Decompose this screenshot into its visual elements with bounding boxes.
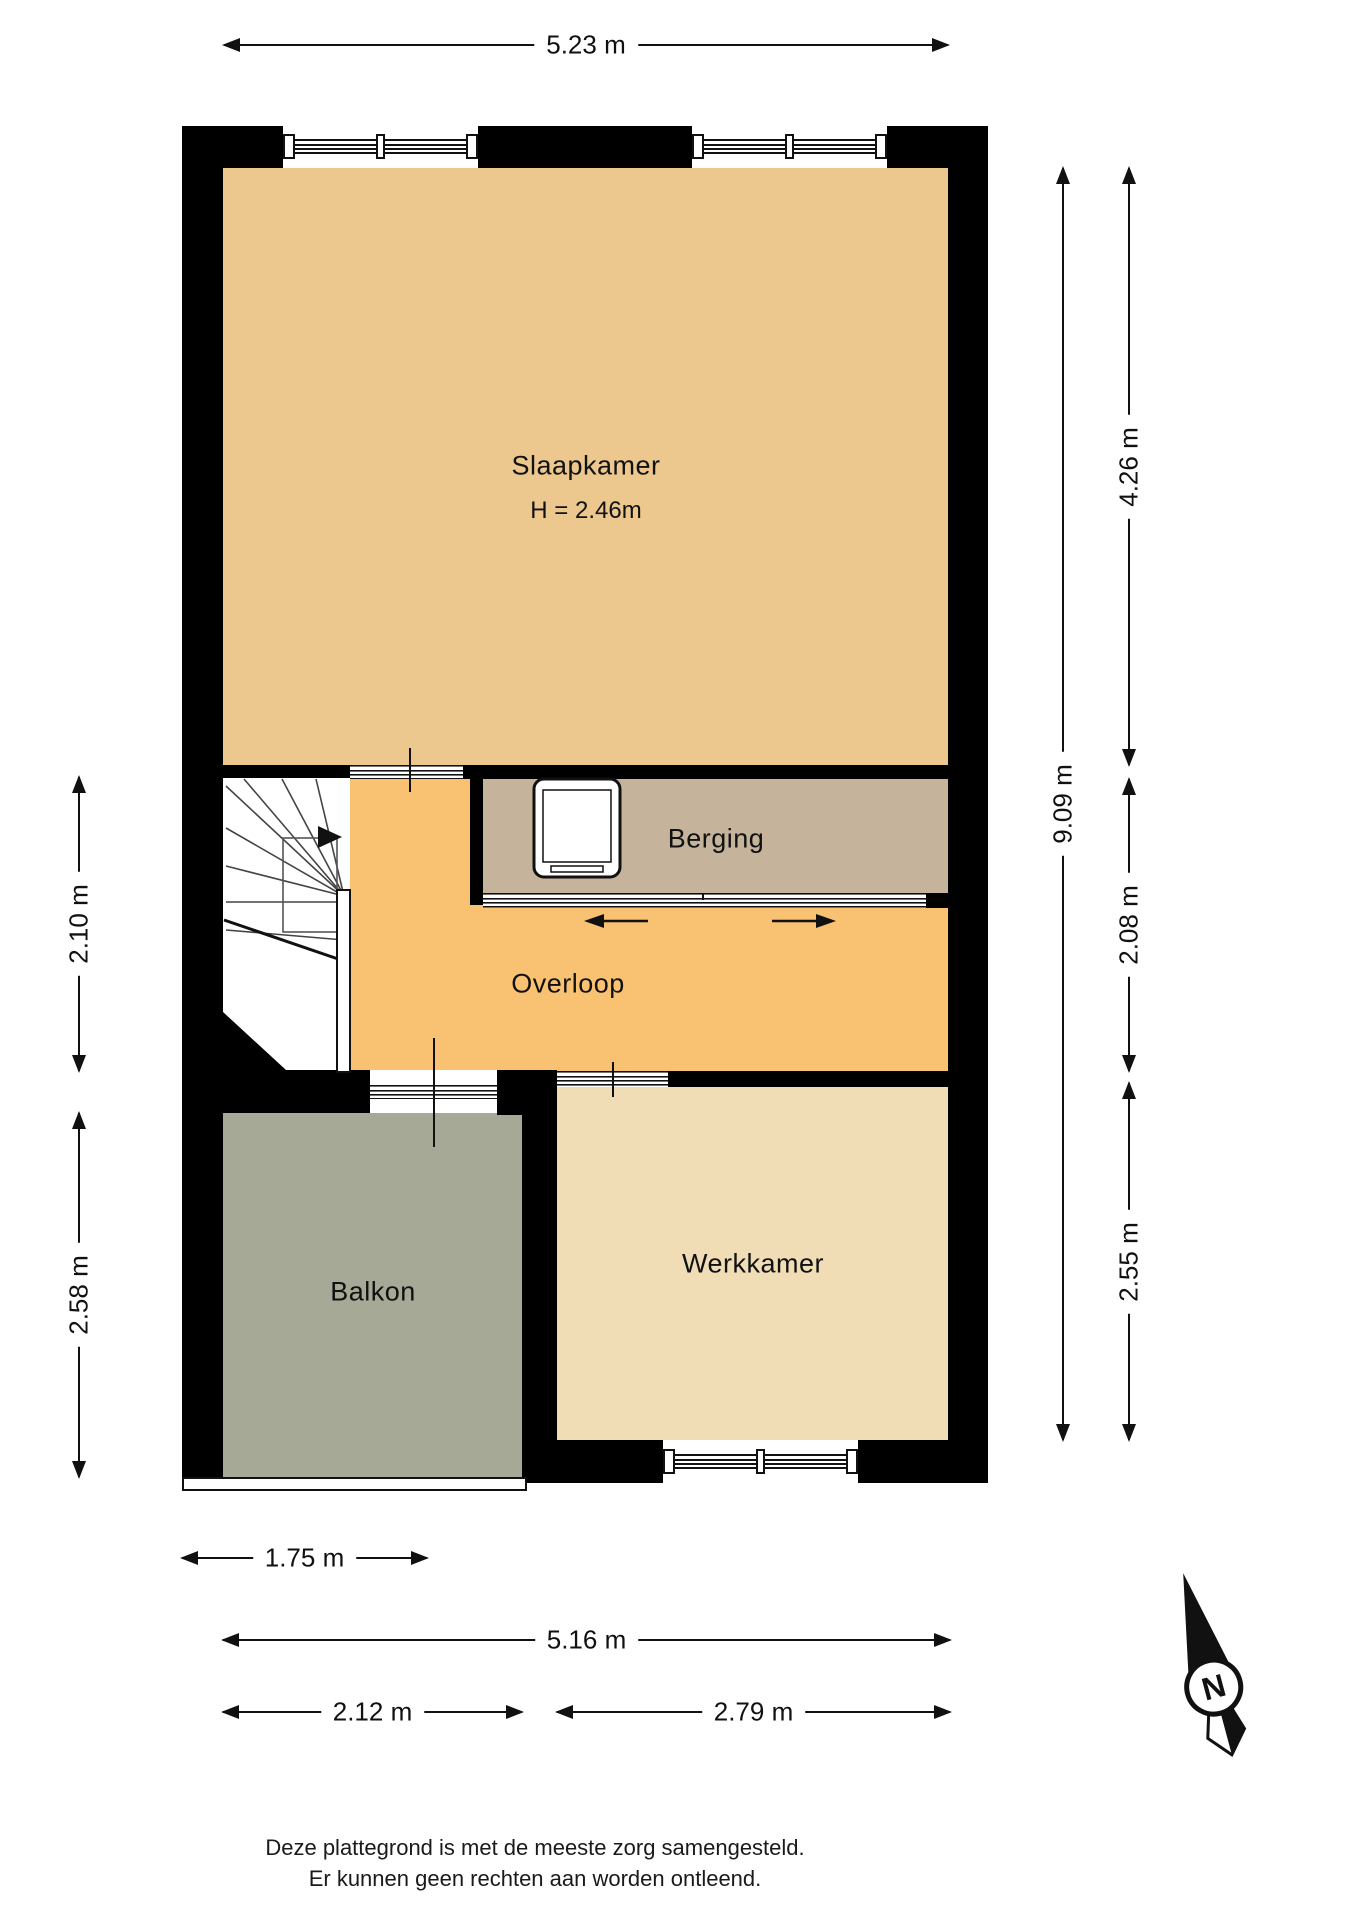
window-overloop-werkkamer [557, 1071, 668, 1086]
door-opening-slaapkamer [350, 765, 463, 779]
dim-bottom-total-label: 5.16 m [535, 1625, 639, 1656]
disclaimer-line1: Deze plattegrond is met de meeste zorg s… [265, 1832, 804, 1863]
dim-right-bedroom-label: 4.26 m [1114, 415, 1145, 519]
disclaimer: Deze plattegrond is met de meeste zorg s… [265, 1832, 804, 1894]
floorplan-page: N Slaapkamer H = 2.46m Berging Overloop … [0, 0, 1358, 1920]
label-overloop: Overloop [511, 969, 625, 1000]
stairwell [223, 778, 350, 1070]
dim-right-bedroom: 4.26 m [1128, 168, 1130, 765]
compass-north-icon: N [1157, 1566, 1258, 1762]
compass-north-letter: N [1198, 1667, 1230, 1708]
label-slaapkamer: Slaapkamer [511, 451, 660, 482]
window-top-right [692, 126, 887, 168]
dim-bottom-balcony: 2.12 m [223, 1711, 522, 1713]
dim-right-study-label: 2.55 m [1114, 1210, 1145, 1314]
dim-bottom-total: 5.16 m [223, 1639, 950, 1641]
label-balkon: Balkon [330, 1277, 416, 1308]
label-berging: Berging [668, 824, 765, 855]
dim-top-width: 5.23 m [224, 44, 948, 46]
wall-top-middle [478, 126, 692, 168]
wall-overloop-werkkamer [668, 1071, 950, 1087]
wall-balkondoor-corner [497, 1070, 557, 1115]
wall-stair-bottom [223, 1070, 370, 1113]
wall-balkon-right [522, 1070, 557, 1483]
wall-right [948, 126, 988, 1483]
label-werkkamer: Werkkamer [682, 1249, 824, 1280]
dim-left-landing-label: 2.10 m [64, 872, 95, 976]
wall-top-left-corner [182, 126, 283, 168]
wall-bedroom-right [463, 765, 950, 779]
balkon-railing [182, 1477, 527, 1491]
wall-left [182, 126, 223, 1477]
wall-berging-left [470, 778, 483, 905]
wall-bedroom-left [223, 765, 350, 778]
dim-bottom-left: 1.75 m [182, 1557, 427, 1559]
sliding-door-berging [483, 893, 926, 908]
dim-right-study: 2.55 m [1128, 1083, 1130, 1440]
dim-right-total-label: 9.09 m [1048, 752, 1079, 856]
dim-left-landing: 2.10 m [78, 777, 80, 1071]
dim-bottom-study: 2.79 m [557, 1711, 950, 1713]
dim-bottom-left-label: 1.75 m [253, 1543, 357, 1574]
dim-left-balcony: 2.58 m [78, 1113, 80, 1477]
dim-bottom-study-label: 2.79 m [702, 1697, 806, 1728]
disclaimer-line2: Er kunnen geen rechten aan worden ontlee… [265, 1863, 804, 1894]
dim-top-width-label: 5.23 m [534, 30, 638, 61]
dim-bottom-balcony-label: 2.12 m [321, 1697, 425, 1728]
dim-left-balcony-label: 2.58 m [64, 1243, 95, 1347]
dim-right-landing: 2.08 m [1128, 779, 1130, 1071]
label-slaapkamer-height: H = 2.46m [530, 497, 641, 525]
window-top-left [283, 126, 478, 168]
wall-slide-stub [926, 893, 950, 908]
window-werkkamer [663, 1440, 858, 1483]
dim-right-total: 9.09 m [1062, 168, 1064, 1440]
dim-right-landing-label: 2.08 m [1114, 873, 1145, 977]
door-opening-balkon [370, 1070, 497, 1113]
